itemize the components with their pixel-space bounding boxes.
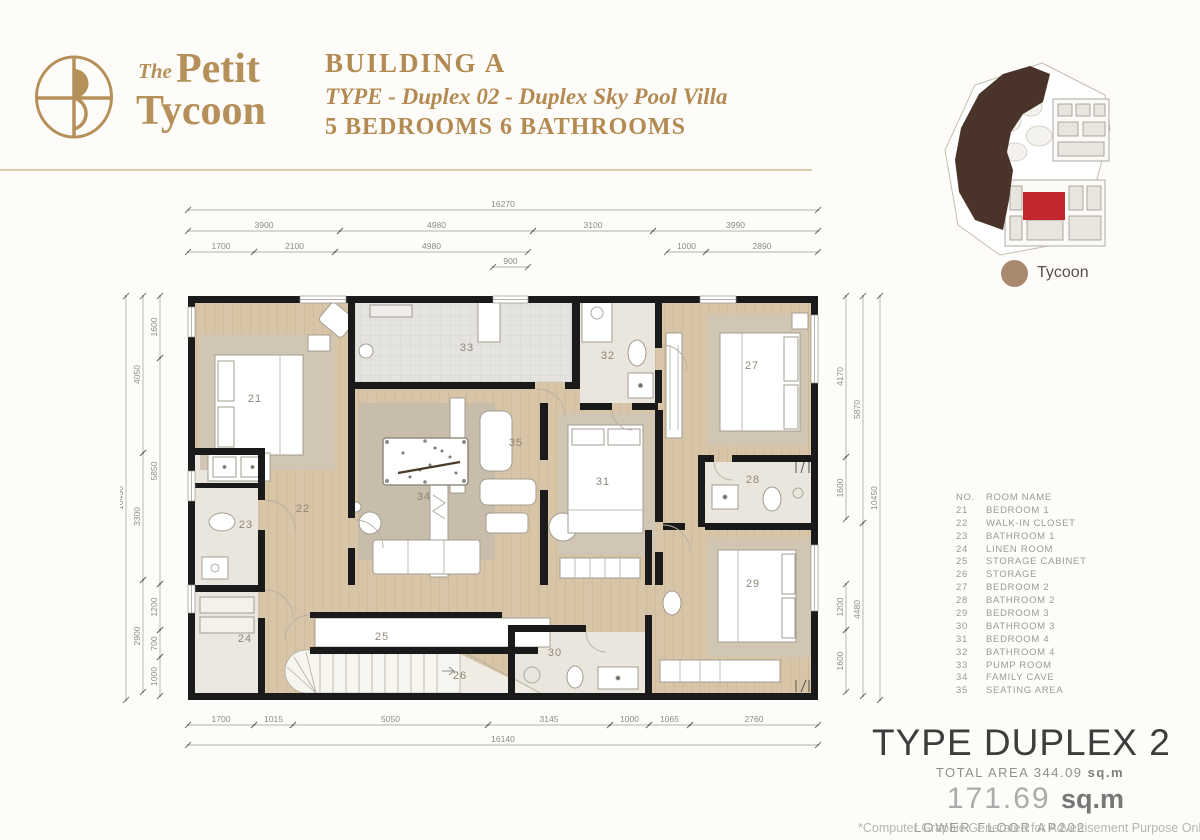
legend-row: 26STORAGE (956, 569, 1087, 582)
legend-row: 22WALK-IN CLOSET (956, 518, 1087, 531)
legend-room-no: 23 (956, 531, 986, 544)
dim-tick-dot (817, 209, 819, 211)
legend-room-no: 22 (956, 518, 986, 531)
dim-label: 4980 (422, 241, 441, 251)
legend-row: 30BATHROOM 3 (956, 621, 1087, 634)
legend-room-no: 29 (956, 608, 986, 621)
room-number-label: 35 (509, 437, 523, 449)
building-title: BUILDING A (325, 48, 728, 79)
legend-room-no: 32 (956, 647, 986, 660)
legend-row: 23BATHROOM 1 (956, 531, 1087, 544)
brand-petit: Petit (176, 45, 260, 93)
dim-tick-dot (125, 699, 127, 701)
dim-label: 1600 (835, 478, 845, 497)
dim-label: 1000 (677, 241, 696, 251)
legend-room-name: LINEN ROOM (986, 544, 1053, 557)
dim-tick-dot (817, 744, 819, 746)
dim-tick-dot (609, 724, 611, 726)
dim-label: 1600 (835, 651, 845, 670)
dim-label: 1015 (264, 714, 283, 724)
dim-tick-dot (492, 266, 494, 268)
legend-room-no: 26 (956, 569, 986, 582)
dim-label: 10450 (869, 486, 879, 510)
room-legend: NO. ROOM NAME 21BEDROOM 122WALK-IN CLOSE… (956, 492, 1087, 698)
legend-room-no: 31 (956, 634, 986, 647)
dim-tick-dot (253, 724, 255, 726)
dim-label: 5050 (381, 714, 400, 724)
sink-icon-bath1 (202, 557, 228, 579)
legend-row: 29BEDROOM 3 (956, 608, 1087, 621)
legend-row: 21BEDROOM 1 (956, 505, 1087, 518)
shower-bath4 (582, 298, 612, 342)
round-table-icon (359, 512, 381, 534)
legend-row: 32BATHROOM 4 (956, 647, 1087, 660)
type-title: TYPE DUPLEX 2 (872, 722, 1138, 764)
legend-room-no: 35 (956, 685, 986, 698)
dim-tick-dot (705, 251, 707, 253)
dim-tick-dot (159, 357, 161, 359)
dim-tick-dot (187, 744, 189, 746)
dim-tick-dot (159, 629, 161, 631)
dim-label: 1700 (212, 241, 231, 251)
side-table-icon (359, 344, 373, 358)
dim-tick-dot (845, 629, 847, 631)
dim-tick-dot (527, 251, 529, 253)
room-number-label: 31 (596, 476, 610, 488)
room-number-label: 23 (239, 519, 253, 531)
floor-area-line: 171.69 sq.m (872, 782, 1124, 816)
dim-tick-dot (689, 724, 691, 726)
toilet-icon-bath3 (567, 666, 583, 688)
dim-label: 1700 (212, 714, 231, 724)
legend-row: 34FAMILY CAVE (956, 672, 1087, 685)
legend-room-no: 28 (956, 595, 986, 608)
floor-area-value: 171.69 (947, 782, 1051, 815)
dim-tick-dot (142, 691, 144, 693)
toilet-icon-bath1 (209, 513, 235, 531)
room-number-label: 26 (453, 670, 467, 682)
legend-row: 25STORAGE CABINET (956, 556, 1087, 569)
tycoon-legend-label: Tycoon (1037, 264, 1089, 282)
legend-row: 24LINEN ROOM (956, 544, 1087, 557)
legend-row: 35SEATING AREA (956, 685, 1087, 698)
legend-room-no: 27 (956, 582, 986, 595)
legend-room-no: 34 (956, 672, 986, 685)
legend-room-no: 30 (956, 621, 986, 634)
header-divider (0, 169, 812, 171)
dim-tick-dot (862, 295, 864, 297)
dim-label: 900 (503, 256, 517, 266)
dim-tick-dot (845, 691, 847, 693)
floor-area-unit: sq.m (1061, 784, 1124, 814)
bed-bedroom2 (720, 333, 800, 431)
dim-label: 5870 (852, 400, 862, 419)
wardrobe-bedroom2 (666, 333, 682, 438)
dim-tick-dot (862, 522, 864, 524)
dim-label: 16270 (491, 199, 515, 209)
dim-label: 1000 (620, 714, 639, 724)
dim-tick-dot (817, 230, 819, 232)
dim-tick-dot (159, 295, 161, 297)
dim-label: 3145 (540, 714, 559, 724)
disclaimer-text: *Computer Graphic Generated for Advertis… (858, 821, 1200, 835)
floor-plan: 212223242526272829303132333435 162703900… (120, 185, 888, 770)
dim-label: 16140 (491, 734, 515, 744)
billiard-table (383, 438, 468, 485)
type-info: TYPE DUPLEX 2 TOTAL AREA 344.09 sq.m 171… (872, 722, 1138, 835)
brand-tycoon: Tycoon (136, 87, 266, 135)
dim-tick-dot (862, 695, 864, 697)
dim-label: 4980 (427, 220, 446, 230)
legend-room-name: BATHROOM 3 (986, 621, 1055, 634)
room-number-label: 32 (601, 350, 615, 362)
legend-row: 33PUMP ROOM (956, 660, 1087, 673)
dim-label: 4480 (852, 600, 862, 619)
seat-icon-2 (480, 479, 536, 505)
dim-tick-dot (845, 518, 847, 520)
room-number-label: 21 (248, 393, 262, 405)
dim-tick-dot (532, 230, 534, 232)
room-number-label: 28 (746, 474, 760, 486)
dim-label: 1200 (835, 597, 845, 616)
dim-tick-dot (487, 724, 489, 726)
room-number-label: 27 (745, 360, 759, 372)
dim-label: 4170 (835, 367, 845, 386)
sofa-icon (373, 540, 480, 574)
legend-row: 27BEDROOM 2 (956, 582, 1087, 595)
dim-tick-dot (187, 230, 189, 232)
pump-equipment (478, 298, 500, 342)
legend-room-name: BEDROOM 2 (986, 582, 1049, 595)
dim-label: 1600 (149, 317, 159, 336)
legend-room-no: 24 (956, 544, 986, 557)
dim-label: 2900 (132, 626, 142, 645)
page-title: BUILDING A TYPE - Duplex 02 - Duplex Sky… (325, 48, 728, 141)
site-legend: Tycoon (1001, 259, 1089, 287)
dim-label: 2100 (285, 241, 304, 251)
legend-room-no: 21 (956, 505, 986, 518)
nightstand-icon (308, 335, 330, 351)
dim-tick-dot (845, 456, 847, 458)
toilet-icon-bath2 (763, 487, 781, 511)
dim-tick-dot (292, 724, 294, 726)
dim-tick-dot (334, 251, 336, 253)
dim-label: 3900 (255, 220, 274, 230)
dim-tick-dot (159, 583, 161, 585)
legend-row: 31BEDROOM 4 (956, 634, 1087, 647)
dim-label: 700 (149, 636, 159, 650)
dim-tick-dot (142, 452, 144, 454)
dim-tick-dot (817, 724, 819, 726)
site-plan-map (935, 52, 1145, 264)
console-cabinet (560, 558, 640, 578)
dim-tick-dot (845, 583, 847, 585)
dim-tick-dot (142, 579, 144, 581)
dim-tick-dot (142, 295, 144, 297)
bedrooms-title: 5 BEDROOMS 6 BATHROOMS (325, 114, 728, 141)
dim-tick-dot (125, 295, 127, 297)
dim-label: 4050 (132, 365, 142, 384)
legend-room-name: BEDROOM 1 (986, 505, 1049, 518)
bed-bedroom3 (718, 550, 796, 642)
legend-room-name: BEDROOM 3 (986, 608, 1049, 621)
dim-tick-dot (253, 251, 255, 253)
legend-room-name: SEATING AREA (986, 685, 1063, 698)
room-number-label: 29 (746, 578, 760, 590)
dim-label: 2890 (753, 241, 772, 251)
dim-tick-dot (648, 724, 650, 726)
legend-room-name: FAMILY CAVE (986, 672, 1054, 685)
dim-tick-dot (527, 266, 529, 268)
legend-room-name: PUMP ROOM (986, 660, 1052, 673)
legend-room-name: BATHROOM 1 (986, 531, 1055, 544)
legend-room-name: STORAGE (986, 569, 1037, 582)
seat-icon-3 (486, 513, 528, 533)
legend-room-name: BATHROOM 2 (986, 595, 1055, 608)
site-highlight-unit (1023, 192, 1065, 220)
page: The Petit Tycoon BUILDING A TYPE - Duple… (0, 0, 1200, 840)
dim-tick-dot (845, 295, 847, 297)
dim-tick-dot (879, 699, 881, 701)
dim-label: 5850 (149, 461, 159, 480)
brand-the: The (138, 59, 172, 84)
legend-room-no: 25 (956, 556, 986, 569)
dim-label: 10450 (120, 486, 125, 510)
total-area-line: TOTAL AREA 344.09 sq.m (872, 765, 1124, 780)
room-number-label: 24 (238, 633, 252, 645)
tycoon-legend-dot (1001, 260, 1028, 287)
dim-label: 3990 (726, 220, 745, 230)
dim-tick-dot (159, 695, 161, 697)
room-number-label: 25 (375, 631, 389, 643)
petit-tycoon-logo-icon (33, 55, 115, 139)
legend-room-name: BATHROOM 4 (986, 647, 1055, 660)
legend-room-name: STORAGE CABINET (986, 556, 1087, 569)
total-area-unit: sq.m (1088, 765, 1124, 780)
dim-tick-dot (666, 251, 668, 253)
dim-label: 3100 (584, 220, 603, 230)
legend-col-no: NO. (956, 492, 986, 505)
dim-label: 1000 (149, 667, 159, 686)
room-number-label: 30 (548, 647, 562, 659)
dim-tick-dot (187, 724, 189, 726)
room-number-label: 33 (460, 342, 474, 354)
dim-tick-dot (187, 251, 189, 253)
legend-room-name: WALK-IN CLOSET (986, 518, 1076, 531)
toilet-icon-bath4 (628, 340, 646, 366)
dim-tick-dot (817, 251, 819, 253)
dim-label: 3300 (132, 507, 142, 526)
unit-type-title: TYPE - Duplex 02 - Duplex Sky Pool Villa (325, 84, 728, 110)
nightstand-icon-2 (792, 313, 808, 329)
legend-room-no: 33 (956, 660, 986, 673)
total-area-value: 344.09 (1034, 765, 1083, 780)
seat-icon (480, 411, 512, 471)
dim-tick-dot (879, 295, 881, 297)
dim-tick-dot (159, 656, 161, 658)
legend-row: 28BATHROOM 2 (956, 595, 1087, 608)
dim-tick-dot (187, 209, 189, 211)
legend-header: NO. ROOM NAME (956, 492, 1087, 505)
legend-col-name: ROOM NAME (986, 492, 1052, 505)
room-number-label: 22 (296, 503, 310, 515)
bed-bedroom1 (215, 355, 303, 455)
dim-label: 1200 (149, 597, 159, 616)
room-number-label: 34 (417, 491, 431, 503)
dim-label: 1065 (660, 714, 679, 724)
legend-room-name: BEDROOM 4 (986, 634, 1049, 647)
dim-label: 2760 (745, 714, 764, 724)
brand-wordmark: The Petit Tycoon (130, 45, 330, 155)
total-area-label: TOTAL AREA (936, 765, 1029, 780)
dim-tick-dot (339, 230, 341, 232)
dim-tick-dot (652, 230, 654, 232)
